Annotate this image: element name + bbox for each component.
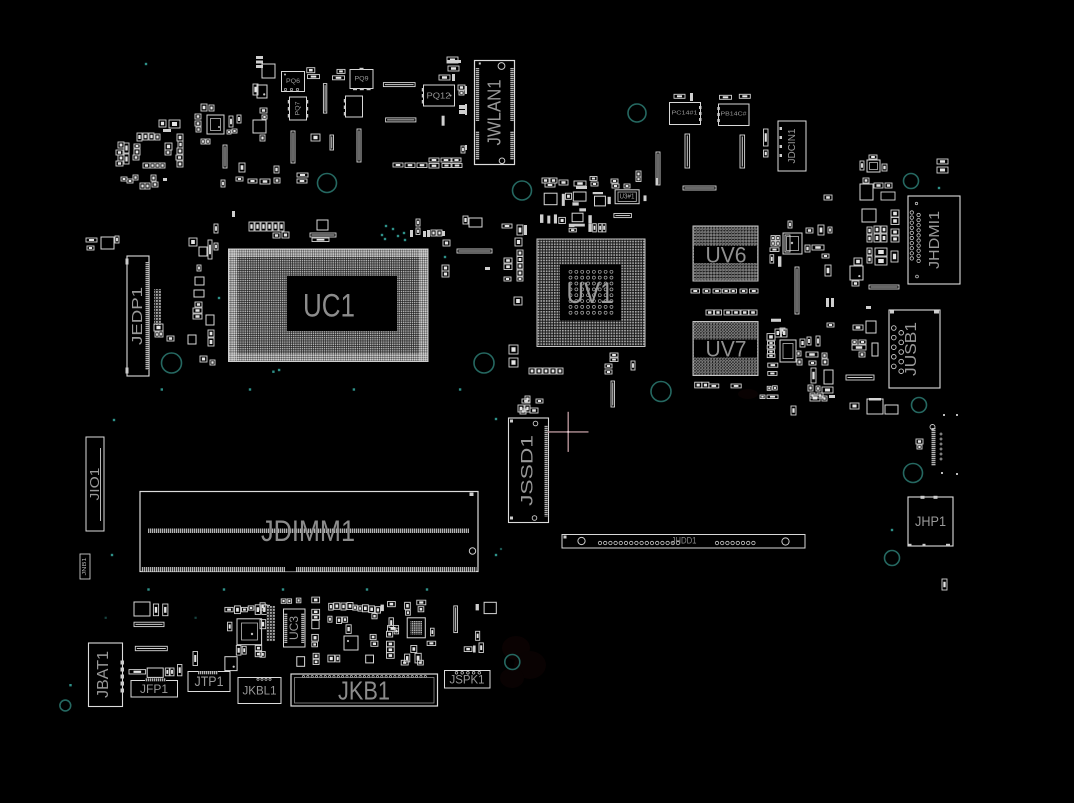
- svg-text:PQ12: PQ12: [427, 91, 451, 101]
- svg-text:PQ9: PQ9: [355, 76, 369, 83]
- svg-text:JHDMI1: JHDMI1: [926, 211, 943, 269]
- svg-text:JEDP1: JEDP1: [129, 287, 146, 345]
- svg-text:UC1: UC1: [303, 288, 355, 324]
- svg-text:JHDD1: JHDD1: [672, 536, 697, 547]
- svg-text:PQ7: PQ7: [295, 101, 302, 115]
- svg-text:JSSD1: JSSD1: [518, 435, 537, 506]
- svg-text:JIO1: JIO1: [87, 468, 102, 501]
- svg-text:UV6: UV6: [706, 243, 747, 268]
- svg-text:JWLAN1: JWLAN1: [485, 80, 505, 146]
- svg-text:UC3: UC3: [287, 616, 301, 640]
- svg-text:JFP1: JFP1: [140, 682, 168, 696]
- svg-text:JHP1: JHP1: [915, 514, 946, 529]
- svg-text:PC14#1: PC14#1: [672, 111, 698, 117]
- svg-text:JKB1: JKB1: [338, 676, 390, 706]
- svg-text:JKBL1: JKBL1: [243, 684, 277, 698]
- svg-text:U3#1: U3#1: [620, 194, 635, 201]
- svg-text:JUSB1: JUSB1: [903, 322, 920, 376]
- svg-text:PQ6: PQ6: [286, 78, 300, 85]
- svg-text:JBAT1: JBAT1: [95, 651, 112, 698]
- svg-text:JTP1: JTP1: [195, 674, 224, 689]
- svg-text:JDIMM1: JDIMM1: [261, 515, 355, 548]
- svg-text:UV7: UV7: [706, 337, 747, 362]
- svg-text:PB14C#: PB14C#: [721, 112, 748, 118]
- svg-text:JSPK1: JSPK1: [450, 673, 485, 687]
- svg-text:UV1: UV1: [567, 277, 614, 310]
- svg-text:JDCIN1: JDCIN1: [787, 128, 798, 163]
- svg-text:JNB1: JNB1: [82, 558, 88, 576]
